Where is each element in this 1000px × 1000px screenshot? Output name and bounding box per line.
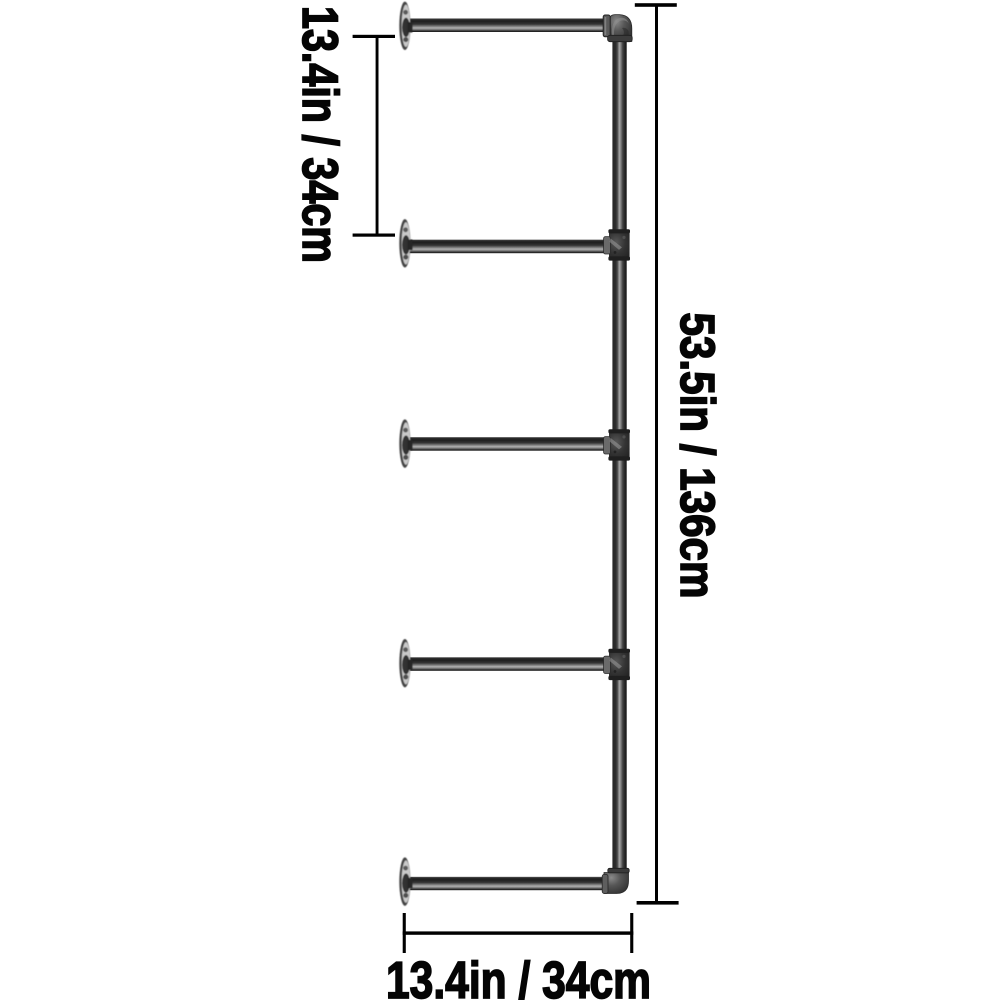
svg-text:53.5in / 136cm: 53.5in / 136cm	[670, 313, 723, 599]
svg-text:13.4in / 34cm: 13.4in / 34cm	[292, 6, 348, 263]
svg-text:13.4in / 34cm: 13.4in / 34cm	[386, 952, 651, 1000]
